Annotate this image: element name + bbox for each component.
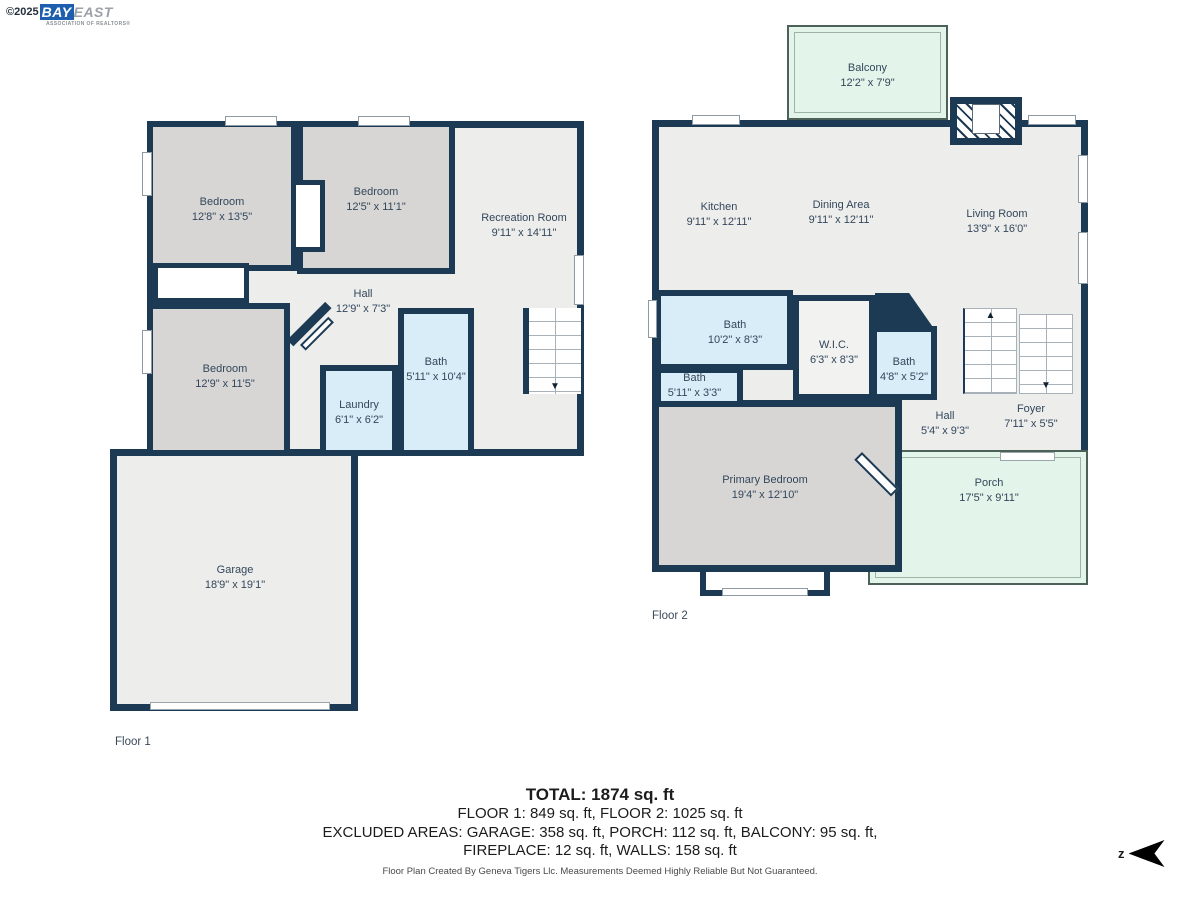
room-name: Laundry — [339, 398, 379, 413]
room-name: Kitchen — [701, 200, 738, 215]
room-name: Recreation Room — [481, 211, 567, 226]
room-dims: 12'5" x 11'1" — [346, 200, 406, 215]
window — [225, 116, 277, 126]
room-dims: 18'9" x 19'1" — [205, 578, 265, 593]
window — [574, 255, 584, 305]
room-label-recreation: Recreation Room 9'11" x 14'11" — [454, 211, 594, 242]
compass-arrow-icon — [1129, 840, 1165, 867]
room-dims: 12'9" x 11'5" — [195, 377, 255, 392]
room-name: Bath — [425, 355, 448, 370]
room-label-bath-small: Bath 4'8" x 5'2" — [865, 355, 943, 386]
room-name: Bedroom — [354, 185, 399, 200]
window — [1078, 232, 1088, 284]
room-dims: 17'5" x 9'11" — [959, 491, 1019, 506]
floor-plan-page: { "logo": { "copyright": "©2025", "brand… — [0, 0, 1200, 900]
room-name: Garage — [217, 563, 254, 578]
area-summary: TOTAL: 1874 sq. ft FLOOR 1: 849 sq. ft, … — [0, 784, 1200, 860]
window — [722, 588, 808, 596]
room-name: Living Room — [966, 207, 1027, 222]
garage-door-opening — [150, 702, 330, 710]
room-name: W.I.C. — [819, 338, 849, 353]
room-dims: 9'11" x 14'11" — [492, 226, 557, 241]
room-label-garage: Garage 18'9" x 19'1" — [165, 563, 305, 594]
room-name: Foyer — [1017, 402, 1045, 417]
room-name: Hall — [354, 287, 373, 302]
room-name: Primary Bedroom — [722, 473, 808, 488]
fireplace-firebox — [972, 104, 1000, 134]
room-label-foyer: Foyer 7'11" x 5'5" — [991, 402, 1071, 433]
room-name: Bath — [893, 355, 916, 370]
room-dims: 12'8" x 13'5" — [192, 210, 252, 225]
room-name: Dining Area — [813, 198, 870, 213]
room-dims: 12'9" x 7'3" — [336, 302, 390, 317]
window — [1028, 115, 1076, 125]
room-dims: 5'4" x 9'3" — [921, 424, 969, 439]
room-name: Bath — [683, 371, 706, 386]
front-door-opening — [1000, 452, 1055, 461]
room-label-hall-f2: Hall 5'4" x 9'3" — [905, 409, 985, 440]
logo-east: EAST — [74, 4, 113, 20]
stairs-flight-up: ▲ — [963, 308, 1017, 394]
window — [692, 115, 740, 125]
floor1-tag: Floor 1 — [115, 736, 151, 748]
room-name: Balcony — [848, 61, 887, 76]
room-name: Porch — [975, 476, 1004, 491]
floor1-closet-under-bedroom — [153, 263, 249, 303]
room-label-bath-half: Bath 5'11" x 3'3" — [652, 371, 737, 402]
summary-floors: FLOOR 1: 849 sq. ft, FLOOR 2: 1025 sq. f… — [0, 805, 1200, 823]
room-label-bath-main: Bath 10'2" x 8'3" — [665, 318, 805, 349]
room-dims: 9'11" x 12'11" — [809, 213, 874, 228]
summary-excluded2: FIREPLACE: 12 sq. ft, WALLS: 158 sq. ft — [0, 842, 1200, 860]
compass-label: z — [1118, 846, 1125, 861]
room-dims: 6'3" x 8'3" — [810, 353, 858, 368]
stairs-down-arrow-icon: ▼ — [550, 382, 560, 392]
fireplace — [950, 97, 1022, 145]
copyright-text: ©2025 — [6, 6, 39, 18]
room-label-bedroom-top-mid: Bedroom 12'5" x 11'1" — [306, 185, 446, 216]
room-dims: 12'2" x 7'9" — [840, 76, 894, 91]
summary-excluded: EXCLUDED AREAS: GARAGE: 358 sq. ft, PORC… — [0, 824, 1200, 842]
room-dims: 10'2" x 8'3" — [708, 333, 762, 348]
room-name: Bedroom — [203, 362, 248, 377]
logo-bay: BAY — [40, 4, 74, 20]
room-dims: 5'11" x 10'4" — [406, 370, 466, 385]
north-arrow: z — [1118, 840, 1165, 867]
floor2-tag: Floor 2 — [652, 610, 688, 622]
window — [1078, 155, 1088, 203]
room-name: Bedroom — [200, 195, 245, 210]
room-label-bedroom-top-left: Bedroom 12'8" x 13'5" — [152, 195, 292, 226]
room-dims: 19'4" x 12'10" — [732, 488, 798, 503]
room-label-laundry: Laundry 6'1" x 6'2" — [320, 398, 398, 429]
window — [358, 116, 410, 126]
floor2-stairs: ▲ ▼ — [963, 308, 1077, 394]
window — [142, 152, 152, 196]
room-label-bath-f1: Bath 5'11" x 10'4" — [398, 355, 474, 386]
room-dims: 4'8" x 5'2" — [880, 370, 928, 385]
stairs-up-arrow-icon: ▲ — [986, 311, 996, 321]
room-dims: 13'9" x 16'0" — [967, 222, 1027, 237]
room-dims: 6'1" x 6'2" — [335, 413, 383, 428]
bayeast-logo: ©2025 BAY EAST ASSOCIATION OF REALTORS® — [6, 4, 113, 20]
room-label-balcony: Balcony 12'2" x 7'9" — [790, 61, 945, 92]
summary-total: TOTAL: 1874 sq. ft — [0, 784, 1200, 805]
room-label-dining: Dining Area 9'11" x 12'11" — [781, 198, 901, 229]
window — [648, 300, 657, 338]
room-name: Bath — [724, 318, 747, 333]
room-dims: 7'11" x 5'5" — [1004, 417, 1057, 432]
room-label-primary-bedroom: Primary Bedroom 19'4" x 12'10" — [695, 473, 835, 504]
window — [142, 330, 152, 374]
room-name: Hall — [936, 409, 955, 424]
room-label-living: Living Room 13'9" x 16'0" — [937, 207, 1057, 238]
room-label-porch: Porch 17'5" x 9'11" — [919, 476, 1059, 507]
room-dims: 9'11" x 12'11" — [687, 215, 752, 230]
room-label-wic: W.I.C. 6'3" x 8'3" — [793, 338, 875, 369]
floor1-stairs: ▼ — [523, 308, 581, 394]
room-label-kitchen: Kitchen 9'11" x 12'11" — [659, 200, 779, 231]
stairs-center-line — [991, 309, 992, 393]
logo-tagline: ASSOCIATION OF REALTORS® — [46, 21, 130, 27]
room-label-bedroom-left: Bedroom 12'9" x 11'5" — [155, 362, 295, 393]
stairs-flight-down: ▼ — [1019, 314, 1073, 394]
stairs-down-arrow-icon: ▼ — [1041, 381, 1051, 391]
disclaimer-text: Floor Plan Created By Geneva Tigers Llc.… — [0, 866, 1200, 877]
room-dims: 5'11" x 3'3" — [668, 386, 721, 401]
room-label-hall-f1: Hall 12'9" x 7'3" — [303, 287, 423, 318]
